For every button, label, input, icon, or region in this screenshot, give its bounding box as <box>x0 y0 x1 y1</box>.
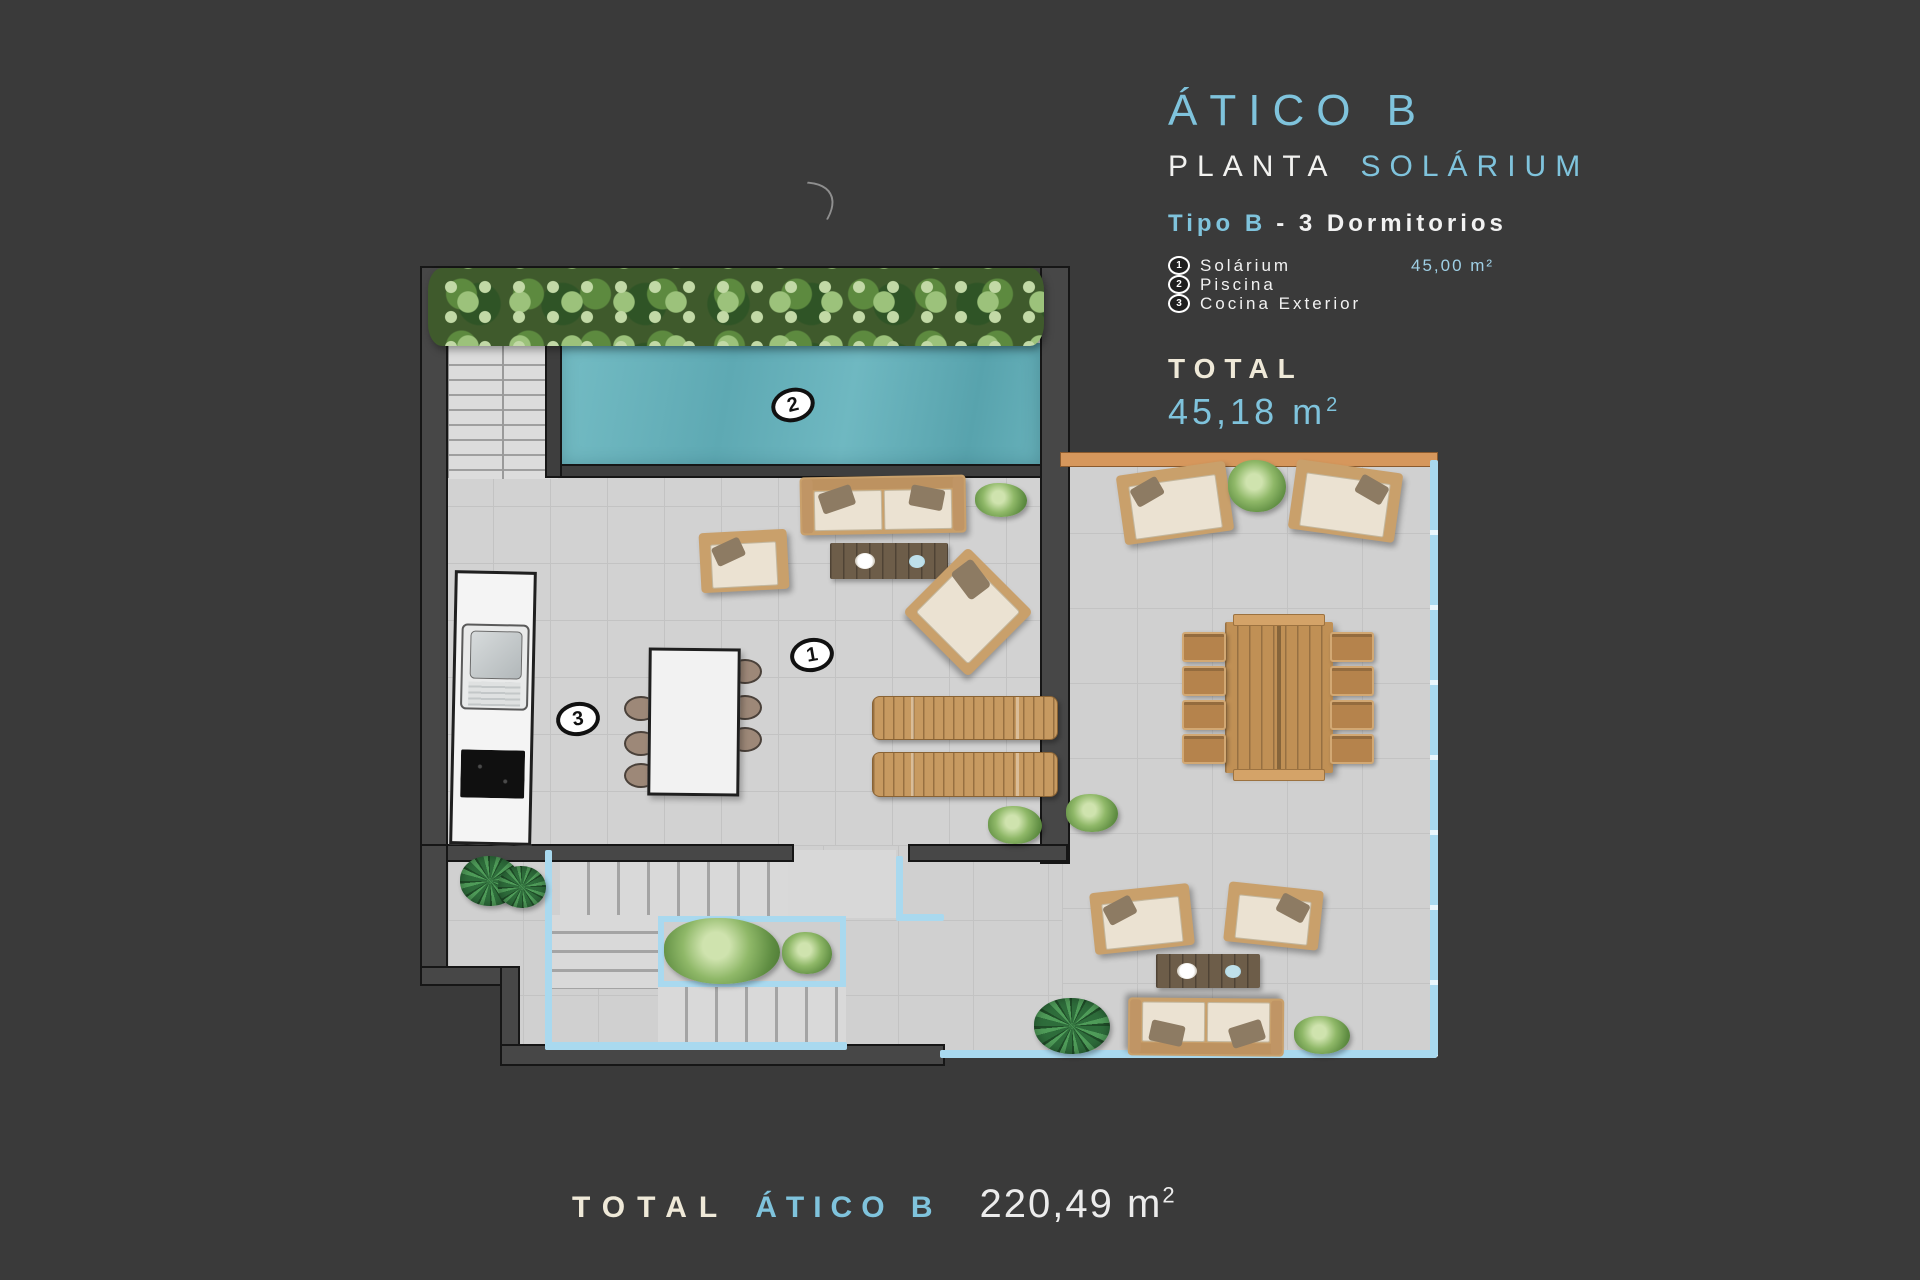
dining-table-unit <box>647 648 741 797</box>
wall-bottom-right <box>908 844 1068 862</box>
kitchen-sink <box>460 623 530 710</box>
palm-terrace-left <box>1034 998 1110 1054</box>
stairs-bottom-flight <box>658 987 846 1045</box>
info-panel: ÁTICO B PLANTASOLÁRIUM Tipo B- 3 Dormito… <box>1168 86 1589 433</box>
planter-bush-large <box>664 918 780 984</box>
palm-plant-stairs-2 <box>498 866 546 908</box>
table-end-top <box>1233 614 1325 626</box>
page-subtitle: PLANTASOLÁRIUM <box>1168 150 1589 184</box>
bush-unit-bottom <box>988 806 1042 844</box>
legend-label: Solárium <box>1200 256 1291 276</box>
sun-lounger-1 <box>872 696 1058 740</box>
page-title: ÁTICO B <box>1168 86 1589 136</box>
legend-label: Cocina Exterior <box>1200 294 1361 314</box>
coffee-table-terrace <box>1156 954 1260 988</box>
kitchen-cooktop <box>460 749 525 798</box>
wall-left <box>420 266 448 864</box>
balustrade-landing-join <box>896 914 944 921</box>
balustrade-landing-right <box>896 856 903 920</box>
terrace-chair <box>1182 632 1226 662</box>
footer-total-label: TOTAL <box>572 1191 729 1225</box>
footer-unit-name: ÁTICO B <box>755 1191 941 1225</box>
type-accent: Tipo B <box>1168 210 1266 237</box>
sofa-unit <box>800 475 967 536</box>
bush-terrace-mid <box>1066 794 1118 832</box>
bush-terrace-top <box>1228 460 1286 512</box>
armchair-terrace-br <box>1223 881 1324 951</box>
wall-lower-left <box>420 844 448 980</box>
sofa-terrace <box>1128 997 1285 1056</box>
floor-plan-page: 2 1 3 ÁTICO B PLANTASOLÁRIUM Tipo B- 3 D… <box>0 0 1920 1280</box>
sun-lounger-2 <box>872 752 1058 797</box>
footer-total: TOTAL ÁTICO B 220,49 m2 <box>572 1182 1177 1227</box>
sink-basin <box>470 631 523 680</box>
legend-value: 45,00 m² <box>1411 256 1494 276</box>
outer-notch <box>408 986 508 1070</box>
terrace-chair <box>1330 666 1374 696</box>
subtitle-planta: PLANTA <box>1168 150 1336 183</box>
balustrade-stairs-left <box>545 850 552 1050</box>
legend: 1 Solárium 45,00 m² 2 Piscina 3 Cocina E… <box>1168 256 1589 313</box>
pool-edge-west <box>545 343 562 478</box>
terrace-chair <box>1330 734 1374 764</box>
terrace-chair <box>1330 700 1374 730</box>
total-value: 45,18 m2 <box>1168 391 1589 433</box>
legend-label: Piscina <box>1200 275 1276 295</box>
type-line: Tipo B- 3 Dormitorios <box>1168 210 1589 238</box>
armchair-terrace-bl <box>1089 883 1195 955</box>
footer-unit: m2 <box>1127 1182 1177 1226</box>
sink-drainboard <box>468 681 520 706</box>
legend-marker-1-icon: 1 <box>1168 256 1190 275</box>
bush-terrace-right <box>1294 1016 1350 1054</box>
outdoor-kitchen-counter <box>449 570 537 846</box>
subtitle-solarium: SOLÁRIUM <box>1360 150 1589 183</box>
dining-table-terrace <box>1225 622 1333 773</box>
total-number: 45,18 <box>1168 391 1278 432</box>
type-rest: - 3 Dormitorios <box>1276 210 1507 237</box>
stairs-left-flight <box>552 915 658 989</box>
armchair-terrace-tr <box>1288 459 1404 543</box>
total-unit: m2 <box>1292 391 1341 432</box>
total-label: TOTAL <box>1168 353 1589 385</box>
terrace-chair <box>1182 700 1226 730</box>
legend-item-cocina: 3 Cocina Exterior <box>1168 294 1589 313</box>
legend-item-piscina: 2 Piscina <box>1168 275 1589 294</box>
balustrade-stairs-bottom <box>545 1042 847 1050</box>
terrace-chair <box>1182 666 1226 696</box>
bush-unit-top <box>975 483 1027 517</box>
footer-total-value: 220,49 m2 <box>980 1182 1177 1227</box>
planter-bush-small <box>782 932 832 974</box>
table-end-bottom <box>1233 769 1325 781</box>
armchair-unit <box>698 529 789 594</box>
legend-marker-3-icon: 3 <box>1168 294 1190 313</box>
legend-marker-2-icon: 2 <box>1168 275 1190 294</box>
coffee-table-unit <box>830 543 948 579</box>
balustrade-right <box>1430 460 1438 1057</box>
terrace-chair <box>1182 734 1226 764</box>
stairs-landing <box>788 850 896 918</box>
terrace-chair <box>1330 632 1374 662</box>
legend-item-solarium: 1 Solárium 45,00 m² <box>1168 256 1589 275</box>
pool-edge-south <box>545 464 1042 478</box>
